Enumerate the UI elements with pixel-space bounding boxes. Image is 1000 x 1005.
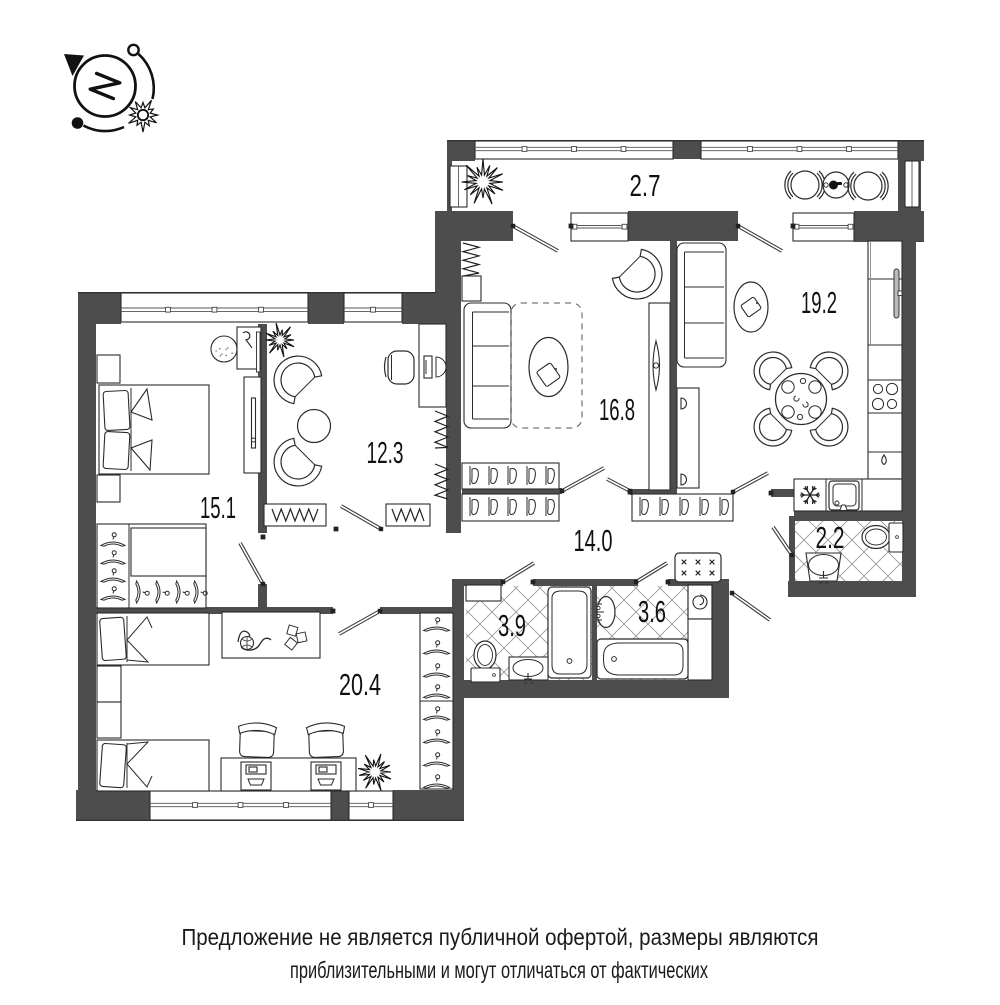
svg-text:приблизительными и могут отлич: приблизительными и могут отличаться от ф… <box>290 957 708 983</box>
svg-text:12.3: 12.3 <box>367 436 404 470</box>
svg-text:16.8: 16.8 <box>599 393 635 427</box>
svg-text:3.9: 3.9 <box>498 609 526 643</box>
svg-text:3.6: 3.6 <box>638 595 666 629</box>
svg-text:20.4: 20.4 <box>339 668 381 702</box>
svg-text:19.2: 19.2 <box>801 286 837 320</box>
svg-text:2.2: 2.2 <box>816 521 845 555</box>
svg-text:2.7: 2.7 <box>630 169 661 203</box>
svg-text:15.1: 15.1 <box>200 491 236 525</box>
svg-text:Предложение не является публич: Предложение не является публичной оферто… <box>182 924 819 950</box>
svg-text:14.0: 14.0 <box>574 524 613 558</box>
